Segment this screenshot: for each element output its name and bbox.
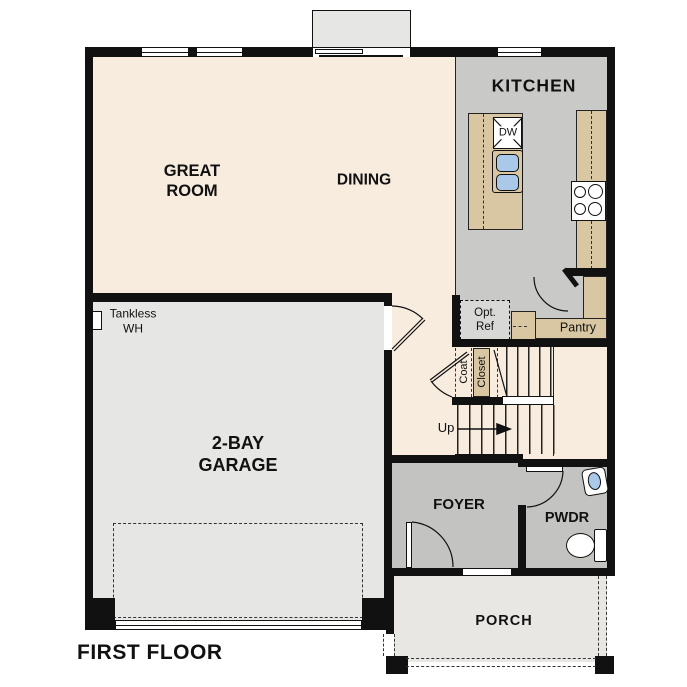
kitchen-window: [497, 47, 542, 57]
dining-label: DINING: [337, 172, 391, 191]
burner-bottom-right: [588, 202, 602, 216]
foyer-label: FOYER: [433, 496, 485, 514]
burner-bottom-left: [574, 203, 586, 215]
pantry-label: Pantry: [560, 320, 596, 335]
garage-door-pier-right: [362, 598, 392, 630]
burner-top-right: [588, 184, 603, 199]
entry-door-sidelite: [462, 568, 512, 576]
toilet-bowl: [566, 533, 595, 558]
dishwasher-label: DW: [498, 126, 518, 139]
sliding-door-panel: [315, 49, 363, 54]
porch-label: PORCH: [475, 613, 532, 631]
foyer-north-wall: [392, 455, 523, 463]
great-room-window-right: [196, 47, 243, 57]
sink-basin-top: [496, 154, 519, 172]
pantry-door-wall-stub: [566, 268, 607, 276]
stair-break-band: [502, 396, 554, 405]
sink-basin-bottom: [496, 174, 519, 191]
garage-door-dashed-outline: [113, 523, 363, 618]
powder-door-leaf: [526, 466, 563, 472]
great-room-window-left: [141, 47, 189, 57]
foyer-powder-divider-wall: [518, 505, 526, 568]
powder-label: PWDR: [545, 510, 589, 528]
tankless-water-heater-label: Tankless WH: [110, 306, 157, 335]
great-room-label: GREAT ROOM: [164, 161, 221, 201]
garage-service-door-opening: [384, 306, 392, 350]
opt-ref-counter-dash: [513, 326, 527, 327]
porch-edge-dashed-right: [598, 576, 607, 656]
great-room-garage-wall: [85, 293, 392, 302]
porch-edge-dashed-bottom: [406, 658, 596, 667]
first-floor-plan: GREAT ROOM DINING KITCHEN 2-BAY GARAGE F…: [0, 0, 687, 687]
opt-ref-label: Opt. Ref: [474, 306, 496, 334]
closet-label: Closet: [476, 356, 488, 387]
kitchen-dining-divider-line: [455, 57, 456, 300]
garage-label: 2-BAY GARAGE: [198, 433, 277, 477]
stairs-upper-run: [506, 347, 554, 397]
garage-door-pier-left: [85, 598, 115, 630]
stairs-lower-run: [457, 405, 555, 454]
coat-label: Coat: [458, 360, 470, 383]
closet-south-wall: [452, 397, 502, 405]
porch-corner-post-right: [595, 656, 614, 674]
plan-title: FIRST FLOOR: [77, 641, 223, 665]
left-exterior-wall: [85, 47, 93, 630]
island-counter-dash-line: [483, 114, 484, 229]
stairs-up-label: Up: [438, 420, 455, 436]
powder-vanity-sink: [581, 466, 609, 497]
toilet-tank: [594, 529, 607, 562]
garage-overhead-door: [115, 620, 362, 630]
pantry-shelf-column: [583, 276, 607, 320]
entry-door-leaf: [406, 522, 412, 568]
kitchen-south-wall: [452, 339, 615, 347]
right-exterior-wall: [607, 47, 615, 576]
porch-edge-dashed-left: [383, 634, 395, 656]
burner-top-left: [574, 186, 586, 198]
vanity-basin: [586, 471, 602, 491]
sliding-door-track: [319, 55, 403, 57]
stair-rail-dash-line: [497, 348, 498, 403]
kitchen-label: KITCHEN: [492, 75, 577, 96]
porch-corner-post-left: [386, 656, 408, 674]
